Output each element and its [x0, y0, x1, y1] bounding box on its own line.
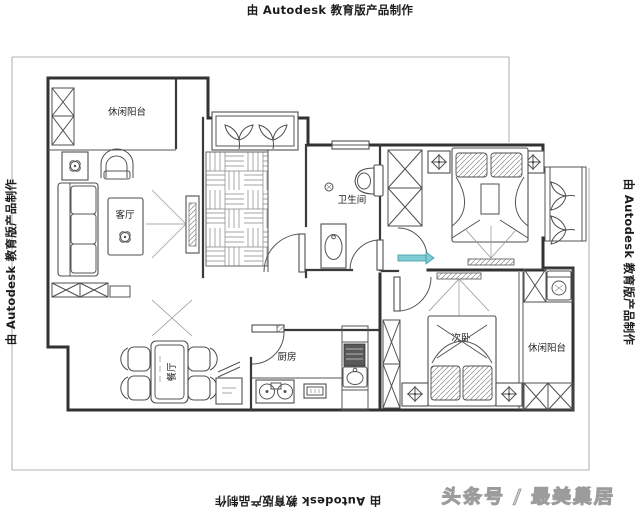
bathroom-label: 卫生间 [338, 194, 367, 206]
washer-cabinet [524, 269, 573, 302]
plant-icon [551, 182, 575, 210]
fridge [344, 344, 365, 366]
channel-watermark: 头条号 / 最美巢居 [441, 482, 616, 509]
balcony-top-left: 休闲阳台 [52, 88, 146, 145]
balcony-right-label: 休闲阳台 [528, 342, 566, 354]
second-bedroom-door [394, 277, 431, 311]
planter-window [212, 112, 298, 150]
plant-icon [551, 216, 575, 244]
door-swing-arrow-icon [426, 252, 434, 264]
floor-plan-page: 休闲阳台 客厅 [0, 0, 641, 513]
shoe-cabinet [216, 362, 242, 404]
bathroom: 卫生间 [321, 141, 383, 268]
dining-chair [121, 347, 150, 371]
dining-chair [188, 347, 217, 371]
floor-drain [325, 183, 333, 191]
nightstand [428, 151, 450, 173]
wardrobe [383, 320, 400, 408]
master-bedroom-door [398, 228, 434, 264]
living-room-label: 客厅 [115, 209, 135, 221]
autodesk-stamp-bottom: 由 Autodesk 教育版产品制作 [215, 493, 381, 509]
bathroom-window [332, 141, 369, 149]
autodesk-stamp-right: 由 Autodesk 教育版产品制作 [621, 179, 637, 345]
foyer-parquet-floor [206, 152, 268, 266]
living-room: 客厅 [52, 149, 199, 336]
tv-cabinet [52, 283, 130, 297]
floor-plan-drawing: 休闲阳台 客厅 [0, 0, 641, 513]
sofa [58, 183, 98, 276]
coffee-table: 客厅 [108, 198, 143, 255]
dining-chair [188, 376, 217, 400]
balcony-top-left-label: 休闲阳台 [108, 106, 146, 118]
bay-window [545, 167, 586, 244]
balcony-right: 休闲阳台 [524, 269, 573, 410]
hall-closet [388, 150, 422, 226]
kitchen: 厨房 [252, 326, 368, 410]
wall-tv [146, 190, 199, 258]
toilet [355, 165, 383, 196]
kitchen-sink [343, 367, 367, 387]
side-table [62, 152, 88, 180]
bathroom-door [350, 240, 383, 270]
entry-door [264, 234, 305, 272]
master-bed [452, 148, 528, 242]
floor-mark [152, 300, 192, 336]
kitchen-column [342, 326, 368, 410]
gas-stove [256, 380, 294, 403]
bedroom-tv [429, 273, 489, 319]
storage-cabinet [52, 88, 74, 145]
nightstand [496, 383, 522, 406]
nightstand [402, 383, 428, 406]
dining-chair [121, 376, 150, 400]
armchair [101, 149, 133, 179]
autodesk-stamp-left: 由 Autodesk 教育版产品制作 [3, 179, 19, 345]
sink-vanity [321, 224, 346, 268]
dining-room-label: 餐厅 [166, 362, 178, 382]
washing-machine [547, 271, 571, 300]
second-bedroom: 次卧 [383, 273, 522, 408]
dining-room: 餐厅 [121, 341, 242, 404]
dining-table: 餐厅 [151, 341, 188, 403]
balcony-cabinet [524, 383, 573, 410]
kitchen-label: 厨房 [277, 351, 296, 363]
master-bedroom [428, 148, 544, 265]
prep-box [304, 384, 326, 398]
second-bed: 次卧 [428, 316, 496, 406]
autodesk-stamp-top: 由 Autodesk 教育版产品制作 [247, 2, 413, 18]
